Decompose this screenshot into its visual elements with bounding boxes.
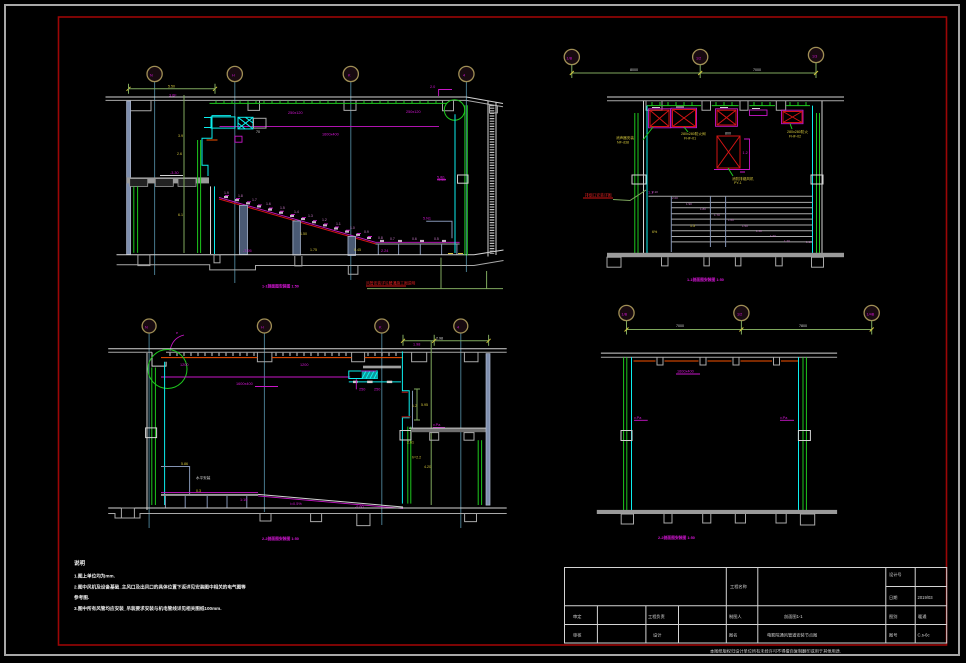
svg-text:0.7: 0.7 <box>390 237 395 241</box>
svg-text:1600x400: 1600x400 <box>677 370 694 374</box>
svg-text:1.5: 1.5 <box>690 224 695 228</box>
svg-text:5.86: 5.86 <box>181 462 188 466</box>
svg-text:h=2.2: h=2.2 <box>412 456 421 460</box>
svg-text:1.4: 1.4 <box>294 210 299 214</box>
svg-text:1.50: 1.50 <box>300 232 307 236</box>
svg-text:1.图上单位均为mm.: 1.图上单位均为mm. <box>74 573 115 580</box>
svg-text:1600x400: 1600x400 <box>322 133 339 137</box>
svg-text:1/2: 1/2 <box>696 57 701 61</box>
svg-text:设计号: 设计号 <box>889 571 902 578</box>
svg-text:7000: 7000 <box>676 324 684 328</box>
svg-text:图号: 图号 <box>889 633 897 639</box>
svg-text:250x120: 250x120 <box>406 110 421 114</box>
svg-text:H: H <box>232 74 235 78</box>
svg-text:0.6: 0.6 <box>412 237 417 241</box>
svg-text:1.9: 1.9 <box>224 191 229 195</box>
svg-text:1.10: 1.10 <box>806 240 812 244</box>
svg-text:1.2: 1.2 <box>743 151 748 155</box>
svg-text:排烟口安装详图: 排烟口安装详图 <box>585 193 612 198</box>
svg-text:1.50: 1.50 <box>742 224 748 228</box>
svg-text:1-1剖面图安装图 1:50: 1-1剖面图安装图 1:50 <box>262 284 299 289</box>
svg-text:风管安装详见暖通施工图说明: 风管安装详见暖通施工图说明 <box>366 281 416 286</box>
svg-text:1/B: 1/B <box>622 313 628 317</box>
svg-text:1.8: 1.8 <box>238 194 243 198</box>
svg-text:2.0: 2.0 <box>430 85 435 89</box>
svg-text:4: 4 <box>463 74 465 78</box>
svg-text:1.0: 1.0 <box>350 226 355 230</box>
svg-text:工程名称: 工程名称 <box>730 583 747 590</box>
svg-text:1.80: 1.80 <box>700 207 706 211</box>
svg-text:1.6: 1.6 <box>266 202 271 206</box>
svg-text:5.50: 5.50 <box>168 84 175 88</box>
svg-text:1200: 1200 <box>180 363 188 367</box>
svg-text:参考图.: 参考图. <box>74 594 89 601</box>
svg-text:水平安装: 水平安装 <box>196 475 211 480</box>
svg-text:1.30: 1.30 <box>770 234 776 238</box>
svg-text:1.3: 1.3 <box>308 214 313 218</box>
svg-text:v.Pa: v.Pa <box>433 423 441 427</box>
svg-text:1.60: 1.60 <box>728 218 734 222</box>
svg-text:5.95: 5.95 <box>421 403 428 407</box>
svg-text:6.1: 6.1 <box>178 213 183 217</box>
svg-text:1.5: 1.5 <box>280 206 285 210</box>
svg-text:暖通: 暖通 <box>918 613 927 620</box>
svg-text:3.9: 3.9 <box>178 134 183 138</box>
svg-text:1.75: 1.75 <box>310 248 317 252</box>
svg-text:1600x400: 1600x400 <box>236 382 253 386</box>
svg-text:2.10: 2.10 <box>652 190 658 194</box>
svg-text:280x280防火阀: 280x280防火阀 <box>681 131 706 136</box>
svg-text:6%: 6% <box>652 230 658 234</box>
svg-text:消声器安装: 消声器安装 <box>616 135 634 140</box>
svg-text:4.20: 4.20 <box>424 465 431 469</box>
svg-text:1/3: 1/3 <box>812 55 817 59</box>
svg-text:FHF-02: FHF-02 <box>789 135 801 139</box>
svg-text:1/2: 1/2 <box>737 313 742 317</box>
svg-text:70: 70 <box>256 130 260 134</box>
svg-text:2-2剖面图安装图 1:50: 2-2剖面图安装图 1:50 <box>658 535 695 540</box>
svg-text:i=0.5%: i=0.5% <box>290 502 302 506</box>
svg-text:日期: 日期 <box>889 595 897 601</box>
svg-text:v.Pa: v.Pa <box>780 416 788 420</box>
svg-text:8000: 8000 <box>630 68 638 72</box>
svg-text:N: N <box>145 326 148 330</box>
svg-text:2-2剖面图安装图 1:50: 2-2剖面图安装图 1:50 <box>262 536 299 541</box>
svg-text:1.70: 1.70 <box>714 213 720 217</box>
svg-text:5.N1: 5.N1 <box>423 217 431 221</box>
svg-text:制图人: 制图人 <box>729 613 742 620</box>
svg-text:7800: 7800 <box>799 324 807 328</box>
svg-text:-7.95: -7.95 <box>243 249 252 253</box>
svg-text:2.00: 2.00 <box>672 196 678 200</box>
svg-text:0.5: 0.5 <box>434 237 439 241</box>
svg-text:H: H <box>261 326 264 330</box>
svg-text:图名: 图名 <box>729 632 737 639</box>
svg-text:0.3: 0.3 <box>196 489 201 493</box>
svg-text:图别: 图别 <box>889 613 897 620</box>
svg-text:1.2: 1.2 <box>322 218 327 222</box>
svg-text:2.图中风机及设备基础_主风口及出风口的具体位置下返详见安装: 2.图中风机及设备基础_主风口及出风口的具体位置下返详见安装图中相关的电气图等 <box>74 584 246 591</box>
svg-text:2.6: 2.6 <box>177 152 182 156</box>
svg-text:N: N <box>150 74 153 78</box>
svg-text:3.图中所有风管均应安装_吊装要求安装与机电管线详见相关图纸: 3.图中所有风管均应安装_吊装要求安装与机电管线详见相关图纸100mm. <box>74 605 222 612</box>
svg-text:本图纸版权归设计单位所有未经许可不得擅自复制翻印或用于其他用: 本图纸版权归设计单位所有未经许可不得擅自复制翻印或用于其他用途. <box>710 648 841 655</box>
svg-text:-3.30: -3.30 <box>170 171 179 175</box>
svg-text:C.s-6c: C.s-6c <box>918 633 930 638</box>
svg-text:PY-1: PY-1 <box>734 181 742 185</box>
svg-text:7000: 7000 <box>753 68 761 72</box>
svg-text:1.90: 1.90 <box>686 202 692 206</box>
svg-text:800: 800 <box>725 132 731 136</box>
svg-text:审定: 审定 <box>573 613 581 620</box>
svg-text:2.24: 2.24 <box>381 249 388 253</box>
svg-text:1/B: 1/B <box>567 57 573 61</box>
svg-text:设计: 设计 <box>653 632 661 639</box>
svg-text:2.98: 2.98 <box>436 337 443 341</box>
svg-text:1:10: 1:10 <box>240 498 247 502</box>
svg-text:1.1: 1.1 <box>336 222 341 226</box>
svg-text:2019/03: 2019/03 <box>918 595 934 600</box>
svg-text:250x120: 250x120 <box>288 111 303 115</box>
svg-text:说明: 说明 <box>74 559 86 567</box>
svg-text:1/4B: 1/4B <box>867 313 875 317</box>
svg-text:1.2: 1.2 <box>412 404 417 408</box>
svg-text:5.80: 5.80 <box>437 176 444 180</box>
svg-text:4: 4 <box>457 326 459 330</box>
svg-text:工程负责: 工程负责 <box>648 613 665 620</box>
svg-text:1.7: 1.7 <box>252 198 257 202</box>
svg-text:审核: 审核 <box>573 632 582 639</box>
svg-text:1.20: 1.20 <box>784 239 790 243</box>
svg-text:v.Pa: v.Pa <box>634 416 642 420</box>
svg-text:1200: 1200 <box>300 363 308 367</box>
svg-text:1-1剖面图安装图 1:50: 1-1剖面图安装图 1:50 <box>687 277 724 282</box>
svg-text:250: 250 <box>374 388 380 392</box>
svg-text:1.40: 1.40 <box>756 229 762 233</box>
svg-text:0.8: 0.8 <box>378 236 383 240</box>
svg-text:280x280防火: 280x280防火 <box>787 129 808 134</box>
svg-text:250: 250 <box>359 388 365 392</box>
svg-text:0.45: 0.45 <box>354 248 361 252</box>
svg-text:2.61: 2.61 <box>407 441 414 445</box>
svg-text:e: e <box>176 331 178 335</box>
svg-text:剖面图1-1: 剖面图1-1 <box>784 613 803 620</box>
svg-text:FHF-01: FHF-01 <box>684 137 696 141</box>
svg-text:1.98: 1.98 <box>413 343 420 347</box>
svg-text:0.9: 0.9 <box>364 230 369 234</box>
svg-text:NF-d38: NF-d38 <box>617 141 629 145</box>
svg-text:电影院通风管道安装节点图: 电影院通风管道安装节点图 <box>767 632 817 639</box>
